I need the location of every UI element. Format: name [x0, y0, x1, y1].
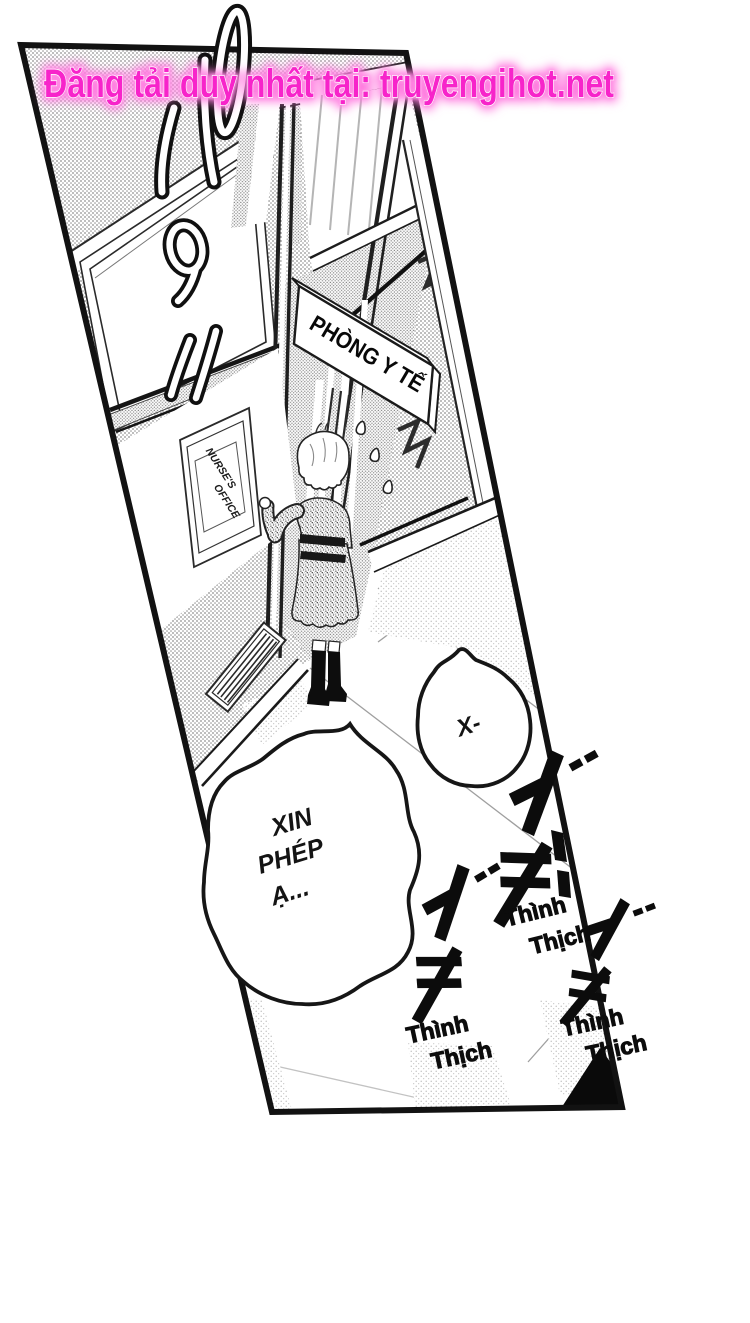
svg-text:Đăng tải duy nhất tại: truyeng: Đăng tải duy nhất tại: truyengihot.net [44, 62, 614, 106]
